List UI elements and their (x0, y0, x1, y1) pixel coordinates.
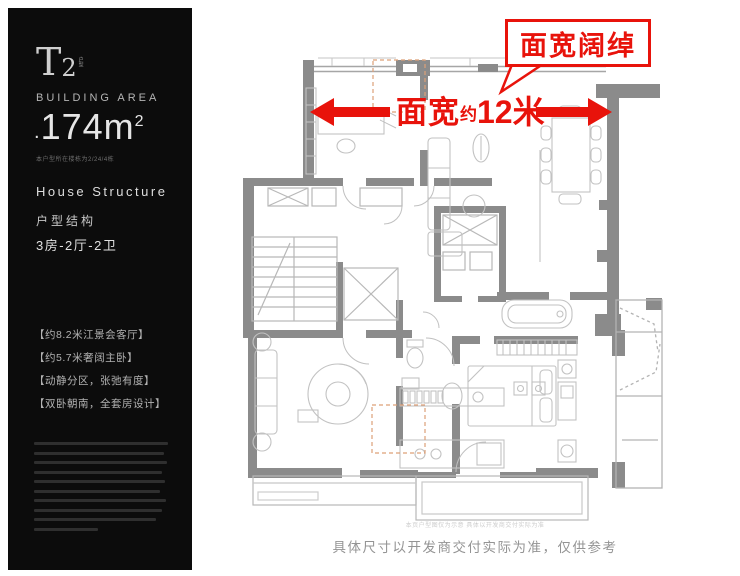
fine-print-block (34, 442, 176, 537)
fine-print-line (34, 518, 156, 521)
width-arrow-right (536, 98, 612, 126)
feature-list: 【约8.2米江景会客厅】【约5.7米奢阔主卧】【动静分区，张弛有度】【双卧朝南，… (34, 324, 166, 416)
fine-print-line (34, 499, 166, 502)
feature-item: 【双卧朝南，全套房设计】 (34, 393, 166, 416)
feature-item: 【约8.2米江景会客厅】 (34, 324, 166, 347)
width-arrow-left (310, 98, 390, 126)
info-sidebar: T 2 户型 BUILDING AREA .174m2 本户型所在楼栋为2/24… (8, 8, 192, 570)
poster-page: 面宽阔绰 面宽约12米 T 2 户型 BUILDING AREA .174m2 … (0, 0, 740, 576)
width-label-part3: 12米 (477, 94, 545, 130)
fine-print-line (34, 509, 162, 512)
feature-item: 【动静分区，张弛有度】 (34, 370, 166, 393)
area-number: 174m (41, 106, 135, 147)
fine-print-line (34, 452, 164, 455)
plan-disclaimer-caption: 具体尺寸以开发商交付实际为准，仅供参考 (310, 536, 640, 556)
area-superscript: 2 (135, 113, 145, 130)
feature-item: 【约5.7米奢阔主卧】 (34, 347, 166, 370)
area-footnote: 本户型所在楼栋为2/24/4栋 (36, 154, 114, 163)
room-layout: 3房-2厅-2卫 (36, 235, 117, 254)
plan-small-print: 本页户型图仅为示意 具体以开发商交付实际为准 (330, 520, 620, 529)
unit-model-tag: 户型 (79, 58, 86, 68)
structure-label-en: House Structure (36, 184, 167, 199)
building-area-label: BUILDING AREA (36, 92, 159, 104)
fine-print-line (34, 461, 167, 464)
width-label-part1: 面宽 (396, 95, 460, 130)
callout-bubble: 面宽阔绰 (505, 19, 651, 67)
fine-print-line (34, 442, 168, 445)
fine-print-line (34, 490, 160, 493)
width-label-part2: 约 (460, 105, 477, 124)
fine-print-line (34, 528, 98, 531)
area-value: .174m2 (34, 106, 145, 148)
unit-model: T 2 户型 (36, 42, 86, 82)
unit-model-letter: T (36, 42, 61, 82)
fine-print-line (34, 471, 162, 474)
unit-model-number: 2 (61, 56, 76, 80)
width-dimension-label: 面宽约12米 (396, 87, 545, 133)
structure-label-cn: 户型结构 (36, 212, 96, 229)
callout-text: 面宽阔绰 (520, 24, 636, 63)
fine-print-line (34, 480, 165, 483)
